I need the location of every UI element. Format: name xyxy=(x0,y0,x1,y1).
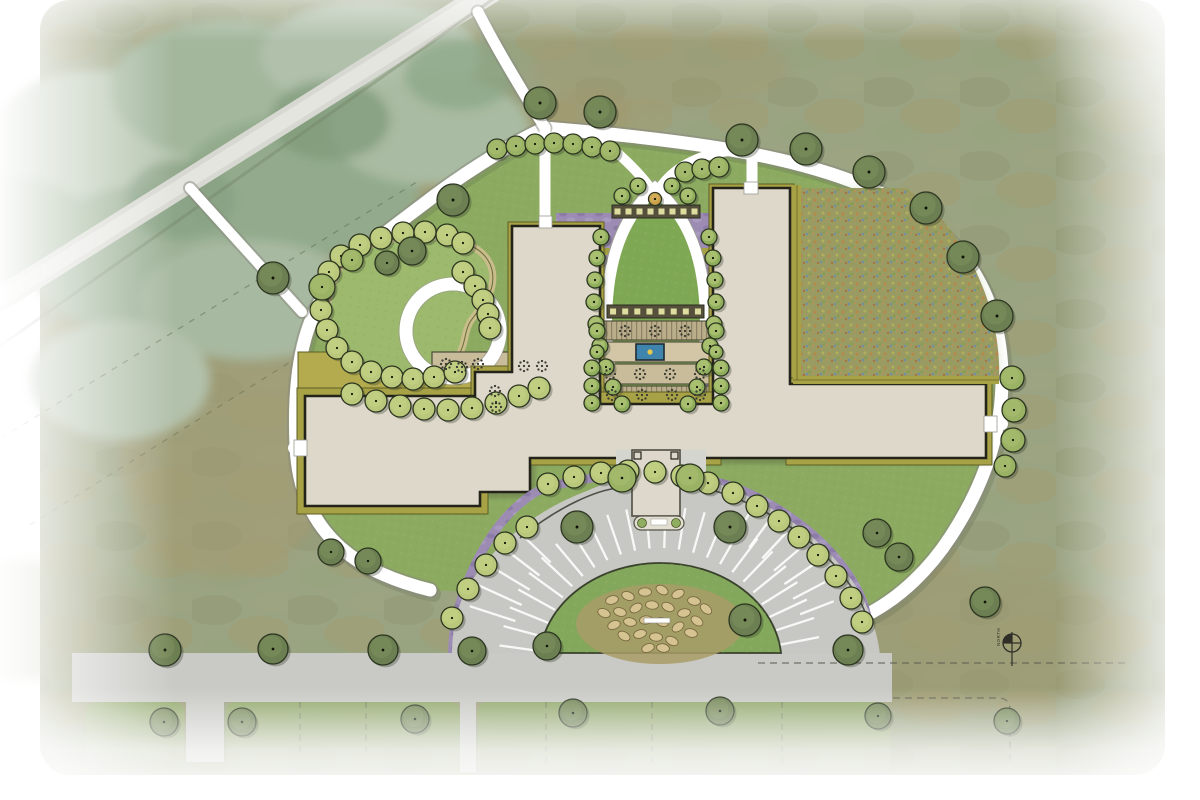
planter-grid xyxy=(490,401,502,413)
north-arrow-label: NORTH xyxy=(996,628,1001,646)
parcel xyxy=(478,702,890,774)
planter-grid xyxy=(636,389,648,401)
planter-grid xyxy=(606,389,618,401)
bench-planter xyxy=(638,519,647,528)
field-brown-patch xyxy=(530,26,790,110)
fountain-dot xyxy=(647,349,652,354)
boulder xyxy=(639,588,652,596)
pergola-bar xyxy=(607,305,704,318)
planter-grid xyxy=(649,325,661,337)
planter-grid xyxy=(604,368,616,380)
planter-grid xyxy=(536,360,548,372)
bench-planter xyxy=(672,519,681,528)
planter-grid xyxy=(634,368,646,380)
planter-grid xyxy=(518,360,530,372)
planter-grid xyxy=(679,325,691,337)
site-plan-rendering: NORTH xyxy=(0,0,1200,800)
planter-grid xyxy=(472,358,484,370)
planter-grid xyxy=(489,385,501,397)
planter-grid xyxy=(666,389,678,401)
planter-grid xyxy=(694,389,706,401)
planter-grid xyxy=(694,368,706,380)
bench-seat xyxy=(651,519,667,525)
planter-grid xyxy=(456,361,468,373)
planter-grid xyxy=(440,358,452,370)
driveway-stub xyxy=(460,702,476,772)
planter-grid xyxy=(619,325,631,337)
planter-grid xyxy=(664,368,676,380)
site-plan-page: NORTH xyxy=(0,0,1200,800)
driveway-stub xyxy=(186,702,224,762)
canopy-column xyxy=(634,452,641,459)
canopy-column xyxy=(671,452,678,459)
island-marker xyxy=(644,618,670,623)
